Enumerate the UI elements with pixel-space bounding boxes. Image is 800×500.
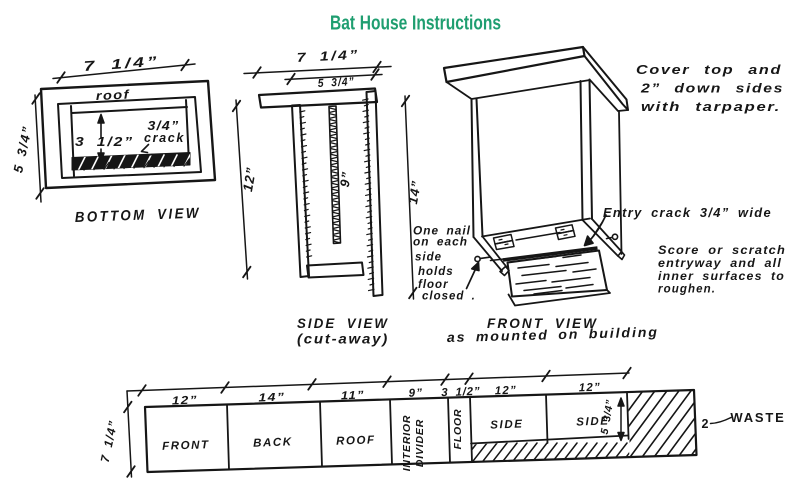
svg-text:12”: 12” (579, 382, 602, 395)
svg-text:12”: 12” (495, 385, 518, 398)
svg-text:12”: 12” (172, 395, 198, 408)
svg-text:BACK: BACK (253, 436, 293, 449)
svg-text:9”: 9” (408, 387, 423, 400)
svg-text:INTERIOR: INTERIOR (401, 415, 413, 472)
svg-text:SIDE VIEW: SIDE VIEW (297, 315, 389, 331)
svg-text:closed .: closed . (422, 291, 476, 303)
svg-text:3 1/2”: 3 1/2” (441, 386, 481, 399)
svg-text:11”: 11” (341, 390, 365, 403)
svg-text:holds: holds (418, 266, 454, 278)
svg-text:(cut-away): (cut-away) (297, 332, 389, 347)
svg-text:inner surfaces to: inner surfaces to (658, 271, 785, 283)
svg-text:with tarpaper.: with tarpaper. (641, 100, 781, 114)
svg-text:Cover top and: Cover top and (636, 63, 782, 77)
svg-text:Bat House Instructions: Bat House Instructions (330, 13, 501, 35)
svg-text:roof: roof (96, 87, 131, 103)
svg-text:2” down sides: 2” down sides (640, 82, 784, 96)
svg-text:WASTE: WASTE (730, 410, 785, 425)
svg-text:14”: 14” (258, 392, 285, 405)
svg-text:Entry crack 3/4” wide: Entry crack 3/4” wide (603, 206, 772, 220)
svg-text:side: side (415, 252, 442, 264)
svg-text:floor: floor (418, 279, 449, 291)
svg-text:roughen.: roughen. (658, 284, 716, 296)
svg-text:on each: on each (413, 237, 468, 249)
svg-text:SIDE: SIDE (490, 418, 524, 431)
svg-text:FRONT: FRONT (162, 439, 210, 453)
svg-text:2: 2 (702, 417, 709, 431)
svg-text:DIVIDER: DIVIDER (414, 419, 426, 467)
svg-text:5 3/4”: 5 3/4” (318, 76, 356, 90)
svg-text:FLOOR: FLOOR (452, 409, 464, 450)
svg-text:ROOF: ROOF (336, 434, 376, 447)
svg-text:3 1/2”: 3 1/2” (75, 134, 134, 149)
svg-text:crack: crack (144, 131, 185, 145)
svg-text:9”: 9” (337, 170, 355, 188)
svg-text:Score or scratch: Score or scratch (658, 245, 786, 257)
svg-text:entryway and all: entryway and all (658, 258, 782, 270)
